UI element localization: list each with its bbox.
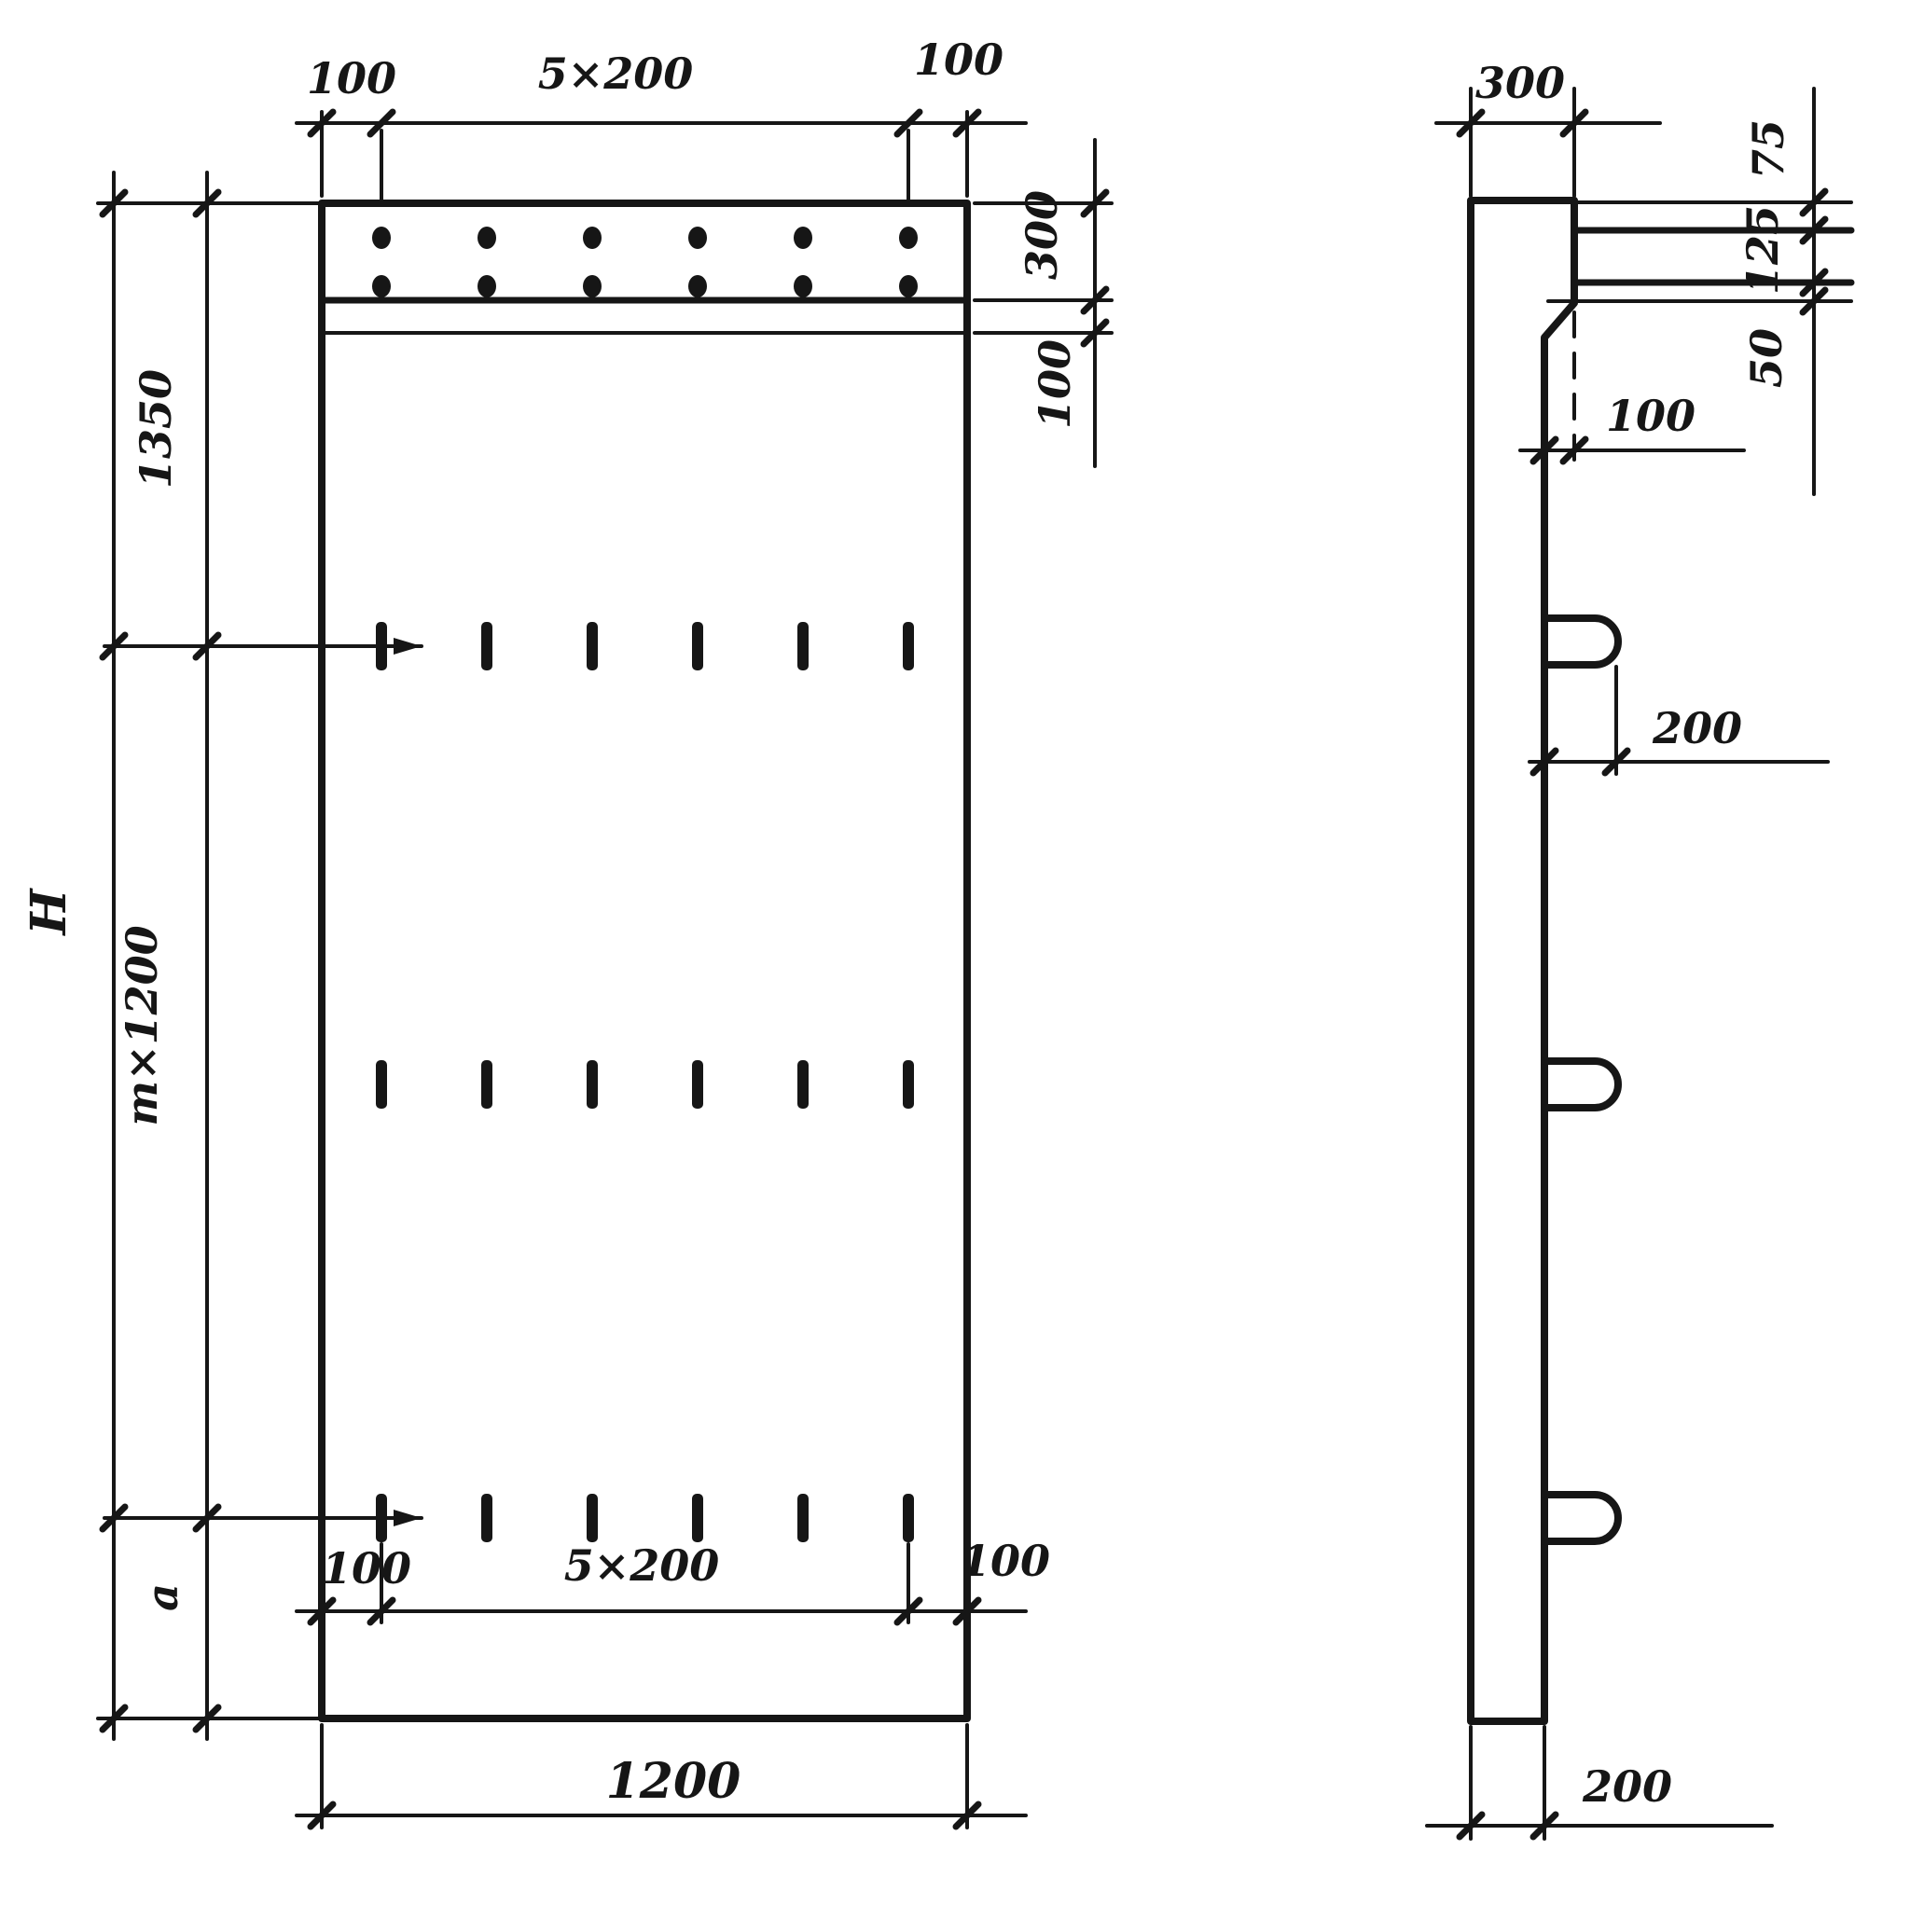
dim-side-loop-protrusion: 200: [1652, 703, 1742, 753]
dim-side-offset-middle: 125: [1737, 205, 1788, 295]
side-right-dimension: 75 125 50: [1737, 89, 1825, 494]
dim-front-cap-strip-height: 300: [1017, 190, 1067, 280]
side-bottom-dimension: 200: [1427, 1727, 1772, 1839]
front-panel-outline: [322, 203, 967, 1718]
front-top-dimension: 100 5×200 100: [297, 34, 1026, 203]
dim-side-chamfer-offset: 100: [1606, 391, 1695, 441]
panel-face: [322, 203, 967, 1718]
side-loop-dimension: 200: [1529, 667, 1828, 774]
front-view: 100 5×200 100 300 100: [21, 34, 1112, 1828]
dim-front-overall-width: 1200: [606, 1753, 741, 1810]
side-top-dimension: 300: [1436, 58, 1660, 196]
front-left-dimension: 1350 m×1200 a H: [21, 172, 422, 1739]
panel-technical-drawing: 100 5×200 100 300 100: [0, 0, 1910, 1932]
dim-side-shaft-thickness: 200: [1582, 1761, 1672, 1812]
dim-front-top-right-margin: 100: [914, 34, 1003, 85]
dim-front-top-segment: 1350: [131, 369, 181, 489]
tie-marks: [376, 622, 914, 1542]
embed-anchor-dots: [372, 227, 918, 297]
dim-front-bottom-segment: a: [137, 1583, 187, 1611]
dim-side-offset-top: 75: [1743, 119, 1793, 179]
dim-front-cap-band-height: 100: [1030, 339, 1080, 429]
dim-front-bottom-spacing: 5×200: [564, 1540, 720, 1591]
row3-arrowhead: [394, 1510, 422, 1526]
dim-front-overall-height: H: [21, 888, 77, 937]
dim-front-top-spacing: 5×200: [538, 48, 694, 99]
dim-side-offset-bottom: 50: [1741, 328, 1792, 388]
front-right-dimension: 300 100: [975, 140, 1112, 466]
side-view: 300 75 125 50 100 200: [1427, 58, 1851, 1839]
row1-arrowhead: [394, 638, 422, 655]
side-chamfer-dimension: 100: [1520, 312, 1744, 466]
dim-front-middle-segment: m×1200: [117, 925, 167, 1125]
lifting-loops: [1544, 618, 1618, 1541]
drawing-sheet: 100 5×200 100 300 100: [0, 0, 1910, 1932]
dim-front-top-left-margin: 100: [307, 53, 396, 103]
dim-front-bottom-left-margin: 100: [322, 1543, 411, 1594]
front-bottom-inner-dimension: 100 5×200 100: [297, 1536, 1050, 1622]
dim-front-bottom-right-margin: 100: [961, 1536, 1050, 1586]
front-bottom-overall-dimension: 1200: [297, 1725, 1026, 1828]
dim-side-head-thickness: 300: [1475, 58, 1565, 108]
